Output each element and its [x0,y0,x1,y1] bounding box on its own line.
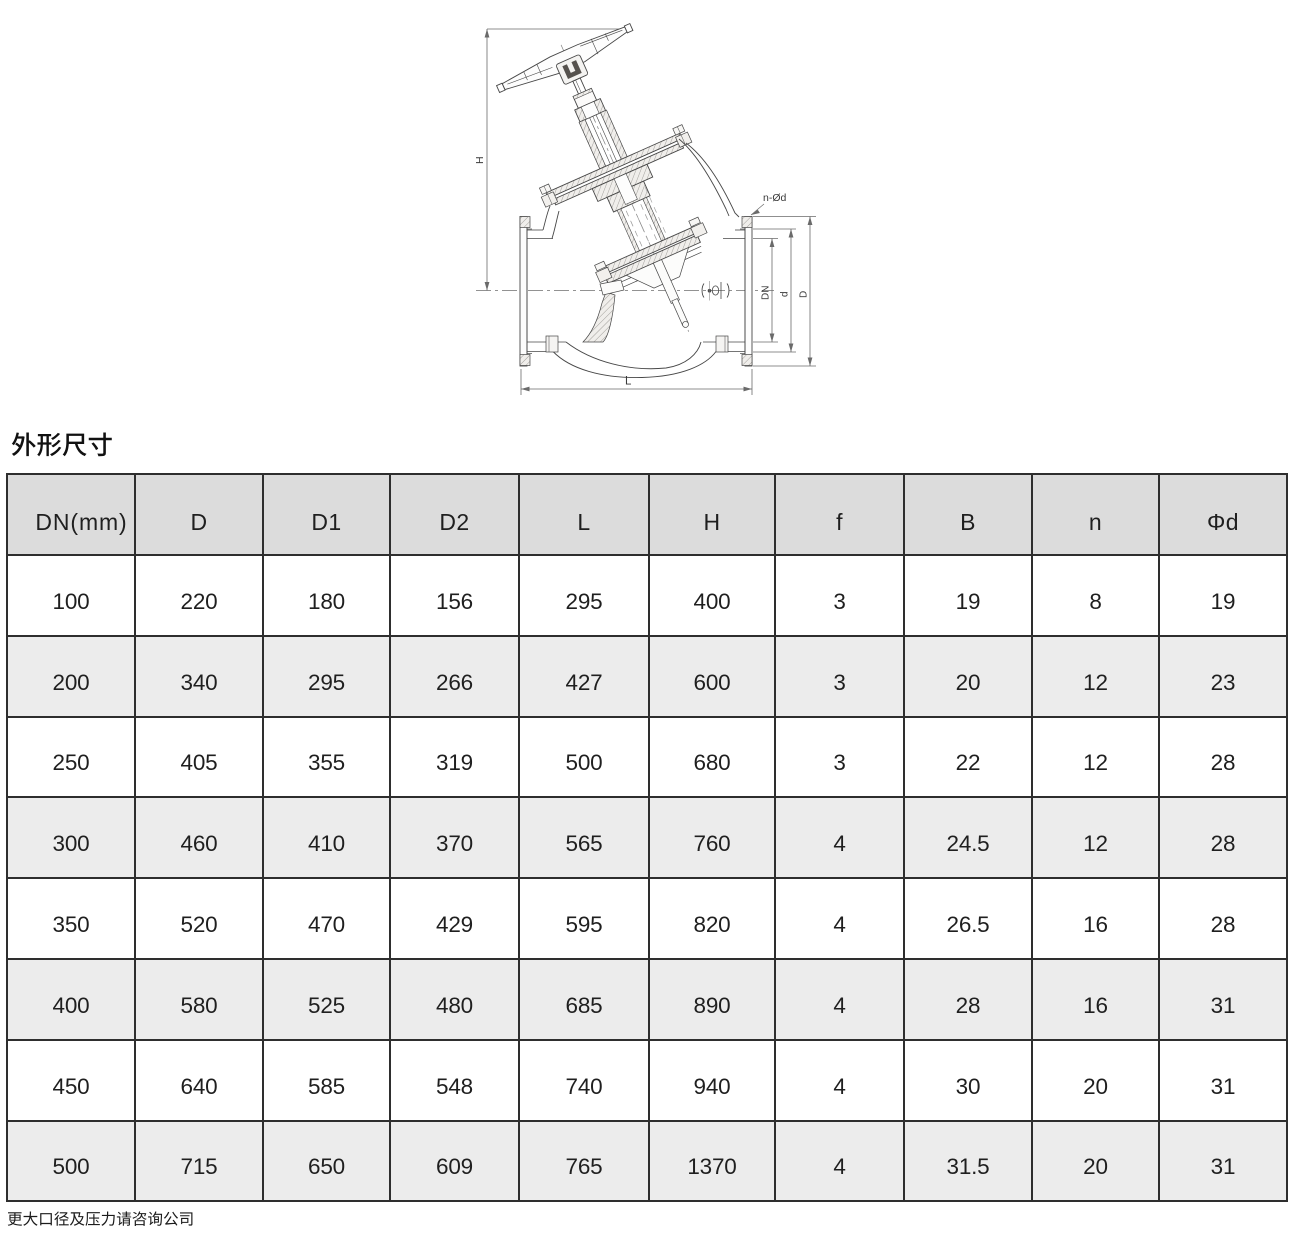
svg-text:L: L [625,376,632,388]
svg-text:n-Ød: n-Ød [763,192,787,204]
svg-text:D: D [799,291,810,298]
svg-text:DN: DN [761,286,772,300]
svg-text:d: d [780,291,791,297]
svg-text:H: H [474,156,486,164]
